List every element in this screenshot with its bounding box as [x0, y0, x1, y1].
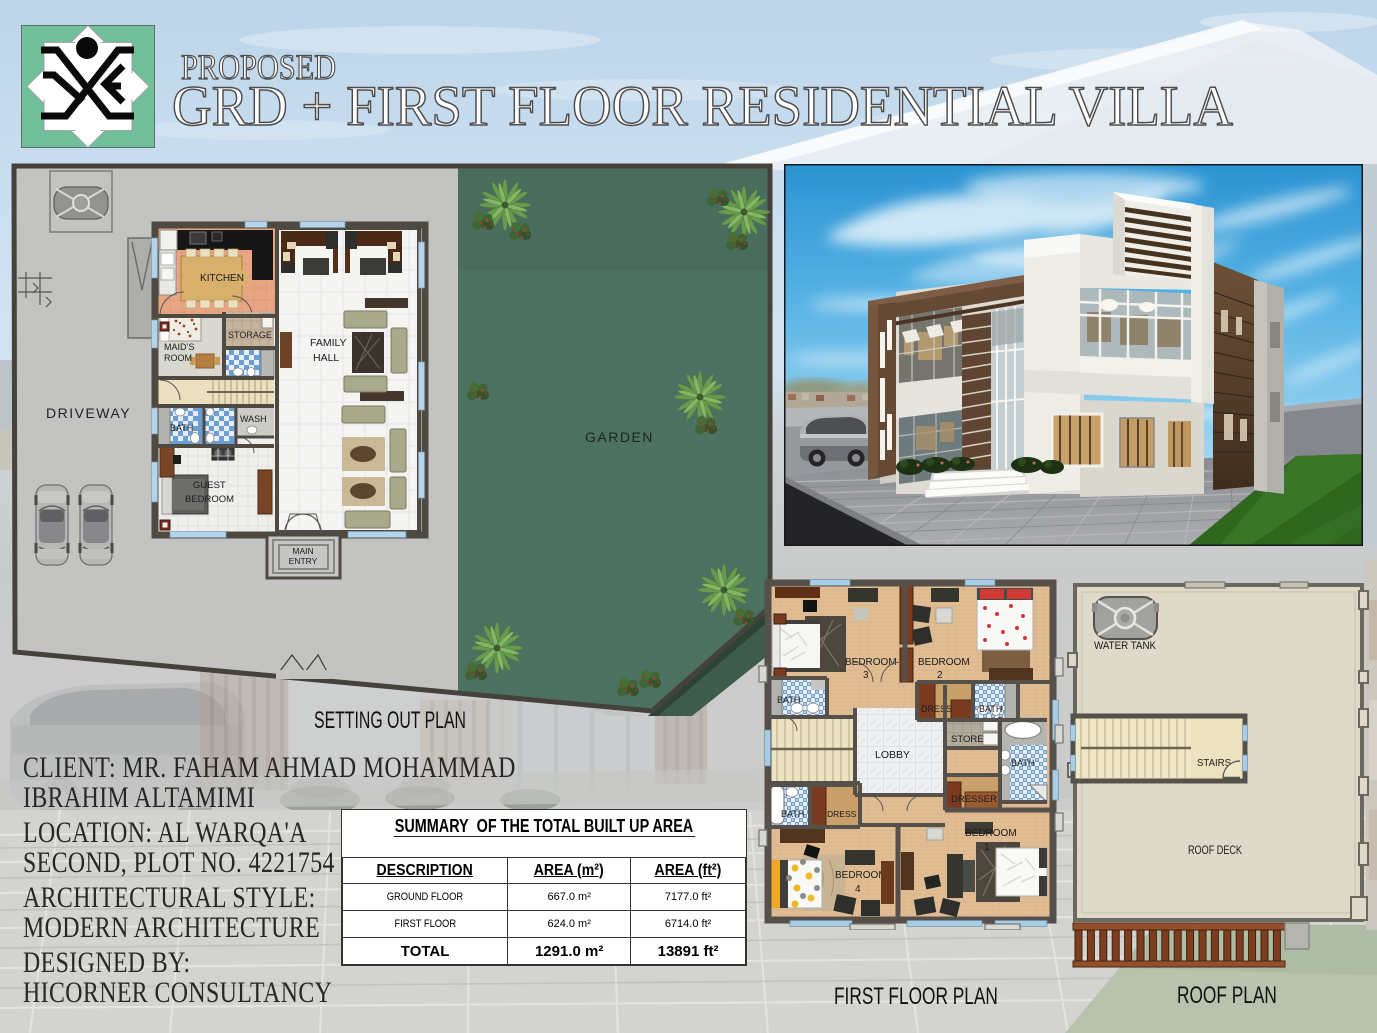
svg-text:GARDEN: GARDEN [585, 429, 654, 445]
svg-text:MAID’S: MAID’S [164, 342, 195, 352]
svg-text:KITCHEN: KITCHEN [200, 273, 244, 284]
svg-text:BEDROOM: BEDROOM [965, 828, 1017, 839]
svg-text:BEDROOM: BEDROOM [185, 494, 234, 505]
svg-text:ROOF DECK: ROOF DECK [1188, 845, 1242, 857]
svg-text:DRESSER: DRESSER [951, 794, 997, 805]
svg-text:BATH: BATH [781, 809, 804, 819]
svg-text:ROOM: ROOM [164, 353, 192, 363]
svg-text:LOBBY: LOBBY [875, 749, 910, 761]
svg-text:STORE: STORE [951, 734, 984, 745]
svg-text:BATH: BATH [777, 695, 800, 705]
svg-text:DRESS: DRESS [827, 809, 857, 819]
svg-text:BEDROOM: BEDROOM [835, 870, 887, 881]
svg-text:DRESS: DRESS [921, 704, 952, 714]
svg-text:BATH: BATH [979, 704, 1002, 714]
svg-text:MAIN: MAIN [292, 546, 313, 556]
svg-text:DRIVEWAY: DRIVEWAY [46, 405, 131, 421]
svg-text:STAIRS: STAIRS [1197, 757, 1231, 769]
svg-text:STORAGE: STORAGE [228, 330, 272, 340]
svg-text:GRD + FIRST FLOOR RESIDENTIAL: GRD + FIRST FLOOR RESIDENTIAL VILLA [172, 75, 1233, 138]
svg-text:3: 3 [863, 670, 869, 681]
svg-text:FAMILY: FAMILY [310, 337, 347, 349]
svg-text:WATER TANK: WATER TANK [1094, 640, 1157, 652]
svg-text:BATH: BATH [1011, 758, 1034, 768]
svg-text:1: 1 [984, 842, 990, 853]
svg-text:WASH: WASH [240, 414, 267, 424]
svg-text:GUEST: GUEST [193, 480, 226, 491]
svg-text:ENTRY: ENTRY [289, 556, 318, 566]
svg-text:2: 2 [937, 670, 943, 681]
svg-text:4: 4 [855, 884, 861, 895]
svg-text:BATH: BATH [170, 423, 193, 433]
svg-text:HALL: HALL [313, 352, 339, 364]
svg-text:BEDROOM: BEDROOM [918, 657, 970, 668]
